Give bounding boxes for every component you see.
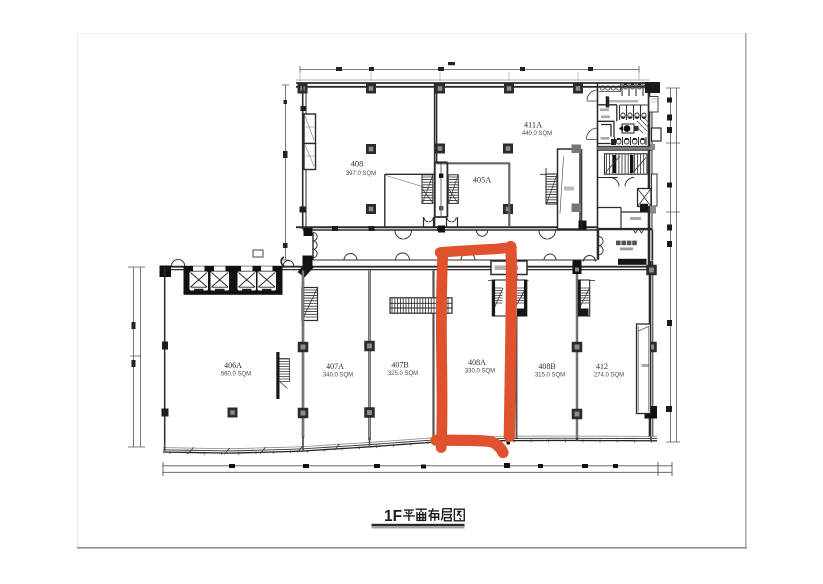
svg-text:560.0 SQM: 560.0 SQM: [221, 371, 251, 377]
svg-text:408: 408: [351, 159, 364, 168]
svg-text:440.0 SQM: 440.0 SQM: [522, 131, 552, 137]
svg-text:407A: 407A: [326, 362, 344, 371]
svg-text:412: 412: [596, 362, 608, 371]
svg-text:411A: 411A: [524, 121, 542, 130]
svg-text:406A: 406A: [224, 361, 242, 370]
svg-text:315.0 SQM: 315.0 SQM: [535, 373, 565, 379]
svg-text:408B: 408B: [538, 362, 555, 371]
svg-text:330.0 SQM: 330.0 SQM: [465, 368, 495, 374]
svg-text:340.0 SQM: 340.0 SQM: [323, 373, 353, 379]
svg-text:274.0 SQM: 274.0 SQM: [594, 373, 624, 379]
svg-text:405A: 405A: [473, 176, 492, 185]
svg-text:408A: 408A: [468, 358, 486, 367]
svg-text:1F: 1F: [384, 508, 402, 525]
svg-text:325.0 SQM: 325.0 SQM: [388, 371, 418, 377]
svg-text:397.0 SQM: 397.0 SQM: [346, 171, 376, 177]
svg-text:407B: 407B: [391, 360, 408, 369]
